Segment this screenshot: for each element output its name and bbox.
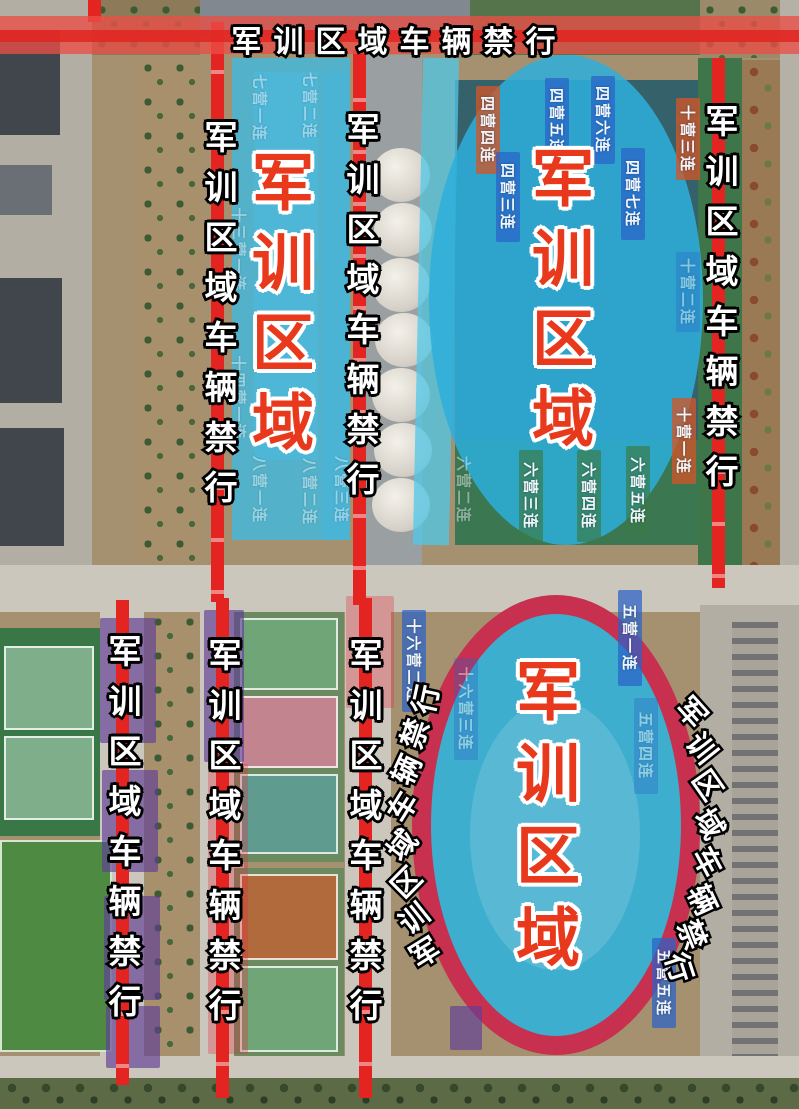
- court: [240, 696, 338, 768]
- top-banner-text: 军训区域车辆禁行: [0, 17, 799, 61]
- court: [240, 874, 338, 960]
- road: [780, 0, 799, 605]
- unit-label: 十六营二连: [402, 610, 426, 712]
- court: [240, 966, 338, 1052]
- tennis-court: [4, 646, 94, 730]
- road-warning-text: 军训区域车辆禁行: [694, 104, 744, 504]
- campus-training-map: 七营一连七营二连十三营一连十四营一连八营一连八营二连八营三连四营四连四营五连四营…: [0, 0, 799, 1109]
- building: [0, 428, 64, 546]
- court: [240, 774, 338, 854]
- tennis-court: [4, 736, 94, 820]
- overlay-strip: [450, 1006, 482, 1050]
- football-pitch: [0, 840, 112, 1052]
- road-warning-text: 军训区域车辆禁行: [97, 634, 147, 1034]
- zone-title-left: 军训区域: [252, 150, 322, 470]
- building: [0, 278, 62, 403]
- road-warning-text: 军训区域车辆禁行: [197, 638, 247, 1038]
- autumn-trees: [742, 60, 780, 600]
- zone-title-top-right: 军训区域: [532, 146, 602, 466]
- parked-cars: [732, 622, 778, 1082]
- court: [240, 618, 338, 690]
- road-warning-text: 军训区域车辆禁行: [335, 112, 385, 512]
- zone-title-stadium: 军训区域: [518, 658, 588, 986]
- road-warning-text: 军训区域车辆禁行: [338, 638, 388, 1038]
- building: [0, 165, 52, 215]
